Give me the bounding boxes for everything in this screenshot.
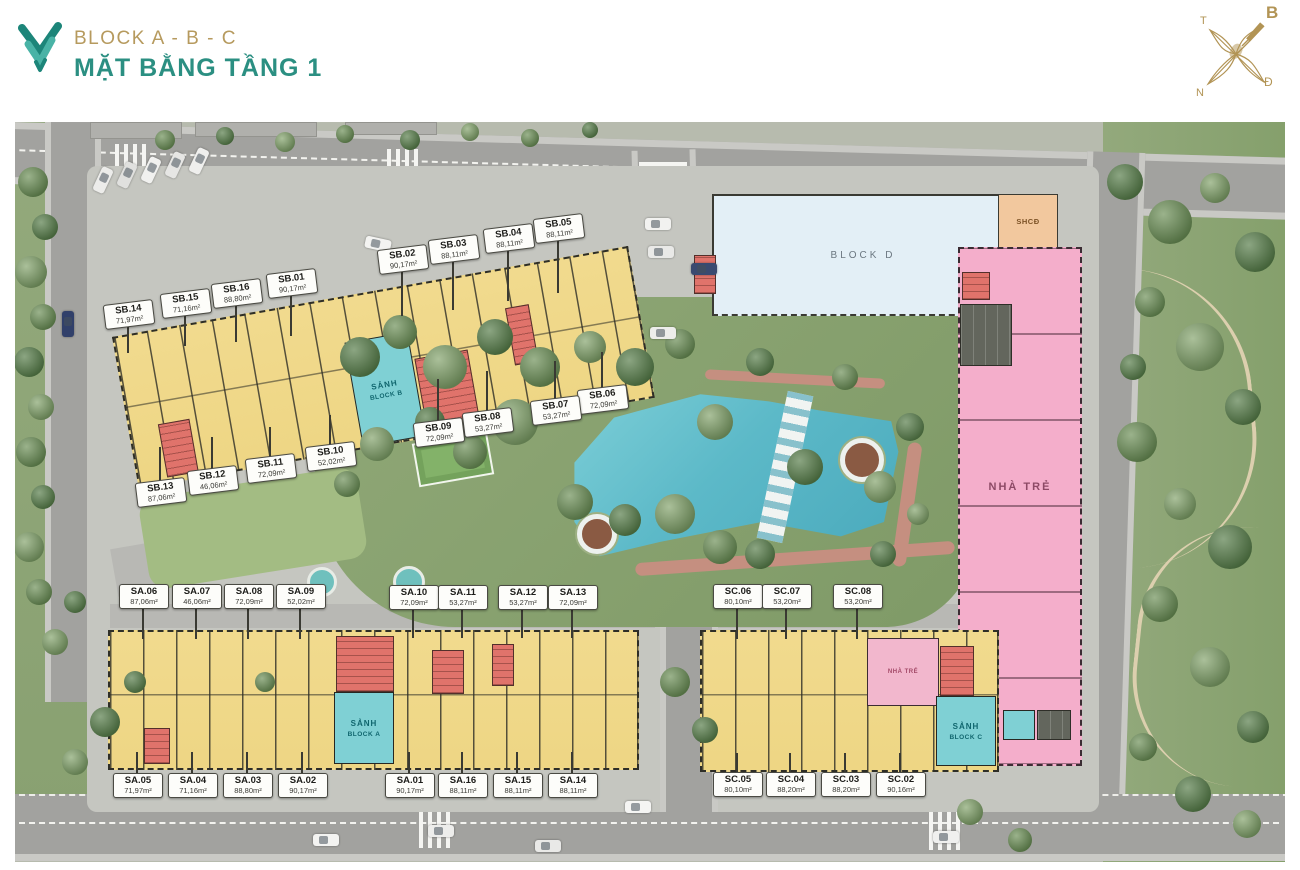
label-leader-line	[235, 306, 237, 342]
unit-label: SA.0290,17m²	[278, 773, 328, 798]
unit-area: 88,11m²	[549, 786, 597, 795]
unit-area: 72,09m²	[225, 597, 273, 606]
label-leader-line	[401, 272, 403, 316]
unit-label: SB.0488,11m²	[483, 223, 536, 254]
unit-label: SC.0488,20m²	[766, 772, 816, 797]
unit-label: SB.0388,11m²	[428, 234, 481, 265]
unit-id: SC.05	[714, 775, 762, 785]
unit-label: SB.1172,09m²	[245, 453, 298, 484]
block-subtitle: BLOCK A - B - C	[74, 28, 322, 50]
unit-area: 88,20m²	[767, 785, 815, 794]
unit-area: 87,06m²	[120, 597, 168, 606]
unit-area: 88,20m²	[822, 785, 870, 794]
unit-area: 72,09m²	[549, 598, 597, 607]
label-leader-line	[301, 752, 303, 774]
unit-id: SA.04	[169, 776, 217, 786]
unit-id: SA.13	[549, 588, 597, 598]
unit-area: 53,27m²	[439, 598, 487, 607]
unit-label: SB.1571,16m²	[160, 288, 213, 319]
unit-label: SA.1372,09m²	[548, 585, 598, 610]
label-leader-line	[571, 610, 573, 638]
label-leader-line	[736, 753, 738, 773]
label-leader-line	[142, 609, 144, 639]
label-leader-line	[159, 447, 161, 481]
unit-id: SA.15	[494, 776, 542, 786]
label-leader-line	[856, 609, 858, 639]
unit-area: 90,17m²	[279, 786, 327, 795]
unit-id: SC.03	[822, 775, 870, 785]
unit-label: SA.0687,06m²	[119, 584, 169, 609]
label-leader-line	[571, 752, 573, 774]
site-plan: BLOCK D SHCĐ NHÀ TRẺ SẢNH BLOCK B	[15, 122, 1285, 862]
unit-label: SC.0753,20m²	[762, 584, 812, 609]
unit-id: SA.06	[120, 587, 168, 597]
label-leader-line	[191, 752, 193, 774]
unit-label: SA.1588,11m²	[493, 773, 543, 798]
unit-label: SB.0972,09m²	[413, 417, 466, 448]
label-leader-line	[246, 752, 248, 774]
unit-label: SC.0290,16m²	[876, 772, 926, 797]
unit-label: SB.0853,27m²	[462, 407, 515, 438]
unit-label: SB.0588,11m²	[533, 213, 586, 244]
unit-id: SC.04	[767, 775, 815, 785]
unit-area: 71,97m²	[114, 786, 162, 795]
unit-id: SA.09	[277, 587, 325, 597]
label-leader-line	[211, 437, 213, 469]
unit-area: 90,16m²	[877, 785, 925, 794]
compass-icon: T B N Đ	[1180, 0, 1290, 108]
unit-id: SA.03	[224, 776, 272, 786]
unit-label: SB.1688,80m²	[211, 278, 264, 309]
unit-area: 90,17m²	[386, 786, 434, 795]
unit-area: 53,20m²	[763, 597, 811, 606]
unit-label: SB.1052,02m²	[305, 441, 358, 472]
label-leader-line	[136, 752, 138, 774]
unit-id: SA.02	[279, 776, 327, 786]
label-leader-line	[461, 610, 463, 638]
label-leader-line	[412, 610, 414, 638]
compass-south: N	[1196, 87, 1204, 99]
unit-area: 88,11m²	[494, 786, 542, 795]
unit-id: SA.08	[225, 587, 273, 597]
unit-area: 88,80m²	[224, 786, 272, 795]
unit-id: SA.05	[114, 776, 162, 786]
label-leader-line	[299, 609, 301, 639]
unit-label: SA.0746,06m²	[172, 584, 222, 609]
unit-label: SC.0853,20m²	[833, 584, 883, 609]
unit-id: SC.06	[714, 587, 762, 597]
label-leader-line	[269, 427, 271, 457]
label-leader-line	[127, 327, 129, 353]
unit-label: SA.0190,17m²	[385, 773, 435, 798]
unit-label: SB.1387,06m²	[135, 477, 188, 508]
label-leader-line	[521, 610, 523, 638]
label-leader-line	[247, 609, 249, 639]
header: BLOCK A - B - C MẶT BẰNG TẦNG 1	[18, 22, 322, 83]
unit-id: SA.12	[499, 588, 547, 598]
unit-label: SA.0872,09m²	[224, 584, 274, 609]
unit-area: 52,02m²	[277, 597, 325, 606]
compass-north: B	[1266, 3, 1278, 22]
label-leader-line	[899, 753, 901, 773]
unit-id: SC.08	[834, 587, 882, 597]
unit-label: SA.1072,09m²	[389, 585, 439, 610]
unit-label: SA.1688,11m²	[438, 773, 488, 798]
label-leader-line	[461, 752, 463, 774]
unit-label: SC.0680,10m²	[713, 584, 763, 609]
unit-label: SB.1471,97m²	[103, 299, 156, 330]
label-leader-line	[452, 262, 454, 310]
unit-id: SA.07	[173, 587, 221, 597]
label-leader-line	[601, 352, 603, 388]
unit-id: SA.16	[439, 776, 487, 786]
page-title: MẶT BẰNG TẦNG 1	[74, 54, 322, 83]
label-leader-line	[554, 361, 556, 399]
unit-area: 72,09m²	[390, 598, 438, 607]
unit-id: SA.11	[439, 588, 487, 598]
compass-west: T	[1200, 15, 1207, 27]
unit-id: SA.10	[390, 588, 438, 598]
unit-labels-layer: SB.0190,17m²SB.0290,17m²SB.0388,11m²SB.0…	[15, 122, 1285, 862]
label-leader-line	[329, 415, 331, 445]
unit-area: 46,06m²	[173, 597, 221, 606]
unit-label: SB.0672,09m²	[577, 384, 630, 415]
unit-label: SA.0571,97m²	[113, 773, 163, 798]
unit-label: SB.0290,17m²	[377, 244, 430, 275]
unit-area: 53,20m²	[834, 597, 882, 606]
label-leader-line	[290, 296, 292, 336]
unit-label: SB.0190,17m²	[266, 268, 319, 299]
brand-logo-icon	[18, 22, 62, 74]
label-leader-line	[195, 609, 197, 639]
unit-label: SA.1253,27m²	[498, 585, 548, 610]
label-leader-line	[408, 752, 410, 774]
unit-label: SA.0388,80m²	[223, 773, 273, 798]
unit-id: SC.07	[763, 587, 811, 597]
unit-id: SA.01	[386, 776, 434, 786]
label-leader-line	[184, 316, 186, 346]
unit-id: SC.02	[877, 775, 925, 785]
unit-area: 53,27m²	[499, 598, 547, 607]
unit-label: SC.0580,10m²	[713, 772, 763, 797]
label-leader-line	[486, 371, 488, 411]
label-leader-line	[789, 753, 791, 773]
unit-label: SA.0471,16m²	[168, 773, 218, 798]
unit-label: SA.1153,27m²	[438, 585, 488, 610]
label-leader-line	[844, 753, 846, 773]
unit-area: 80,10m²	[714, 597, 762, 606]
label-leader-line	[736, 609, 738, 639]
unit-label: SB.0753,27m²	[530, 395, 583, 426]
label-leader-line	[437, 379, 439, 421]
unit-area: 71,16m²	[169, 786, 217, 795]
unit-label: SB.1246,06m²	[187, 465, 240, 496]
floorplan-page: BLOCK A - B - C MẶT BẰNG TẦNG 1 T B N Đ	[0, 0, 1300, 870]
unit-area: 88,11m²	[439, 786, 487, 795]
compass-east: Đ	[1264, 75, 1273, 89]
label-leader-line	[516, 752, 518, 774]
unit-label: SA.1488,11m²	[548, 773, 598, 798]
unit-id: SA.14	[549, 776, 597, 786]
unit-area: 80,10m²	[714, 785, 762, 794]
label-leader-line	[557, 241, 559, 293]
label-leader-line	[507, 251, 509, 301]
unit-label: SC.0388,20m²	[821, 772, 871, 797]
label-leader-line	[785, 609, 787, 639]
unit-label: SA.0952,02m²	[276, 584, 326, 609]
